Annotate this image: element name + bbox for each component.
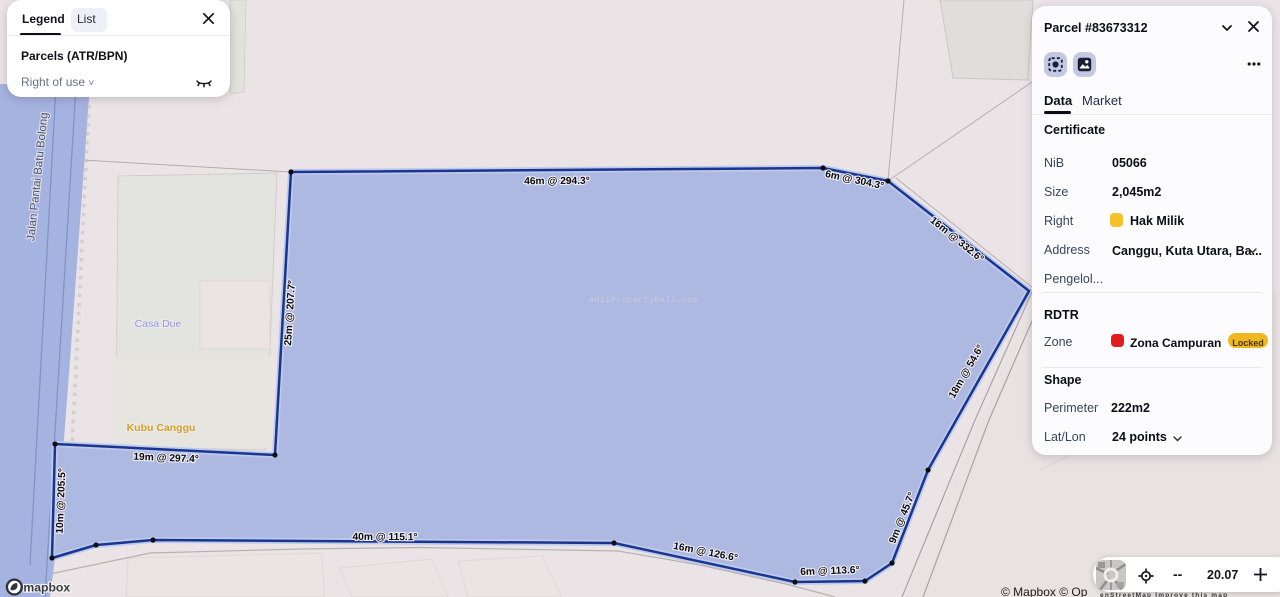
svg-text:mapbox: mapbox bbox=[23, 581, 70, 595]
svg-text:Casa Due: Casa Due bbox=[135, 318, 182, 330]
svg-text:Kubu Canggu: Kubu Canggu bbox=[127, 422, 196, 434]
svg-text:6m @ 113.6°: 6m @ 113.6° bbox=[800, 565, 860, 578]
svg-text:46m @ 294.3°: 46m @ 294.3° bbox=[524, 176, 590, 187]
svg-text:40m @ 115.1°: 40m @ 115.1° bbox=[352, 532, 417, 543]
svg-text:AditPropertyBali.com: AditPropertyBali.com bbox=[589, 295, 698, 305]
